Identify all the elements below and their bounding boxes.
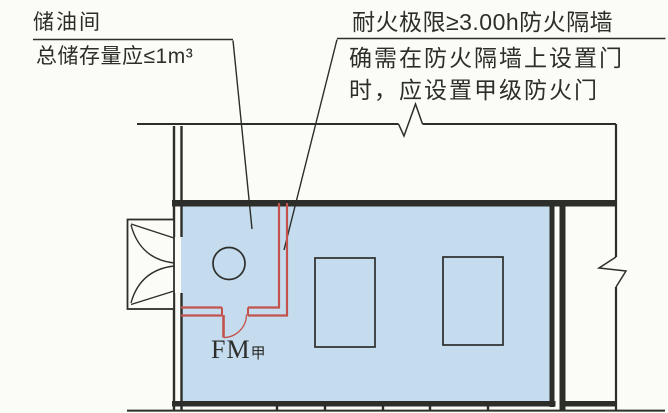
- left-wall: [174, 126, 182, 410]
- firewall-door-note-line1: 确需在防火隔墙上设置门: [349, 44, 624, 73]
- bottom-corridor-wall: [560, 401, 618, 407]
- bottom-wall: [172, 401, 556, 407]
- room-fill: [181, 205, 551, 402]
- corridor-wall: [560, 200, 566, 410]
- right-break-symbol: [599, 257, 626, 287]
- boiler-room-fire-partition-diagram: 储油间 总储存量应≤1m³ 耐火极限≥3.00h防火隔墙 确需在防火隔墙上设置门…: [0, 0, 668, 413]
- top-wall: [172, 200, 616, 207]
- fire-door-tag: FM甲: [211, 334, 266, 367]
- oil-room-label: 储油间: [33, 10, 102, 36]
- fire-door-tag-grade: 甲: [251, 346, 266, 362]
- top-break-symbol: [399, 104, 423, 136]
- firewall-rating-label: 耐火极限≥3.00h防火隔墙: [352, 8, 613, 37]
- firewall-door-note-line2: 时，应设置甲级防火门: [349, 76, 599, 105]
- partition-wall-right: [550, 200, 555, 407]
- entrance-door-frame: [128, 220, 175, 310]
- oil-room-capacity-note: 总储存量应≤1m³: [36, 44, 193, 70]
- fire-door-tag-prefix: FM: [211, 335, 251, 364]
